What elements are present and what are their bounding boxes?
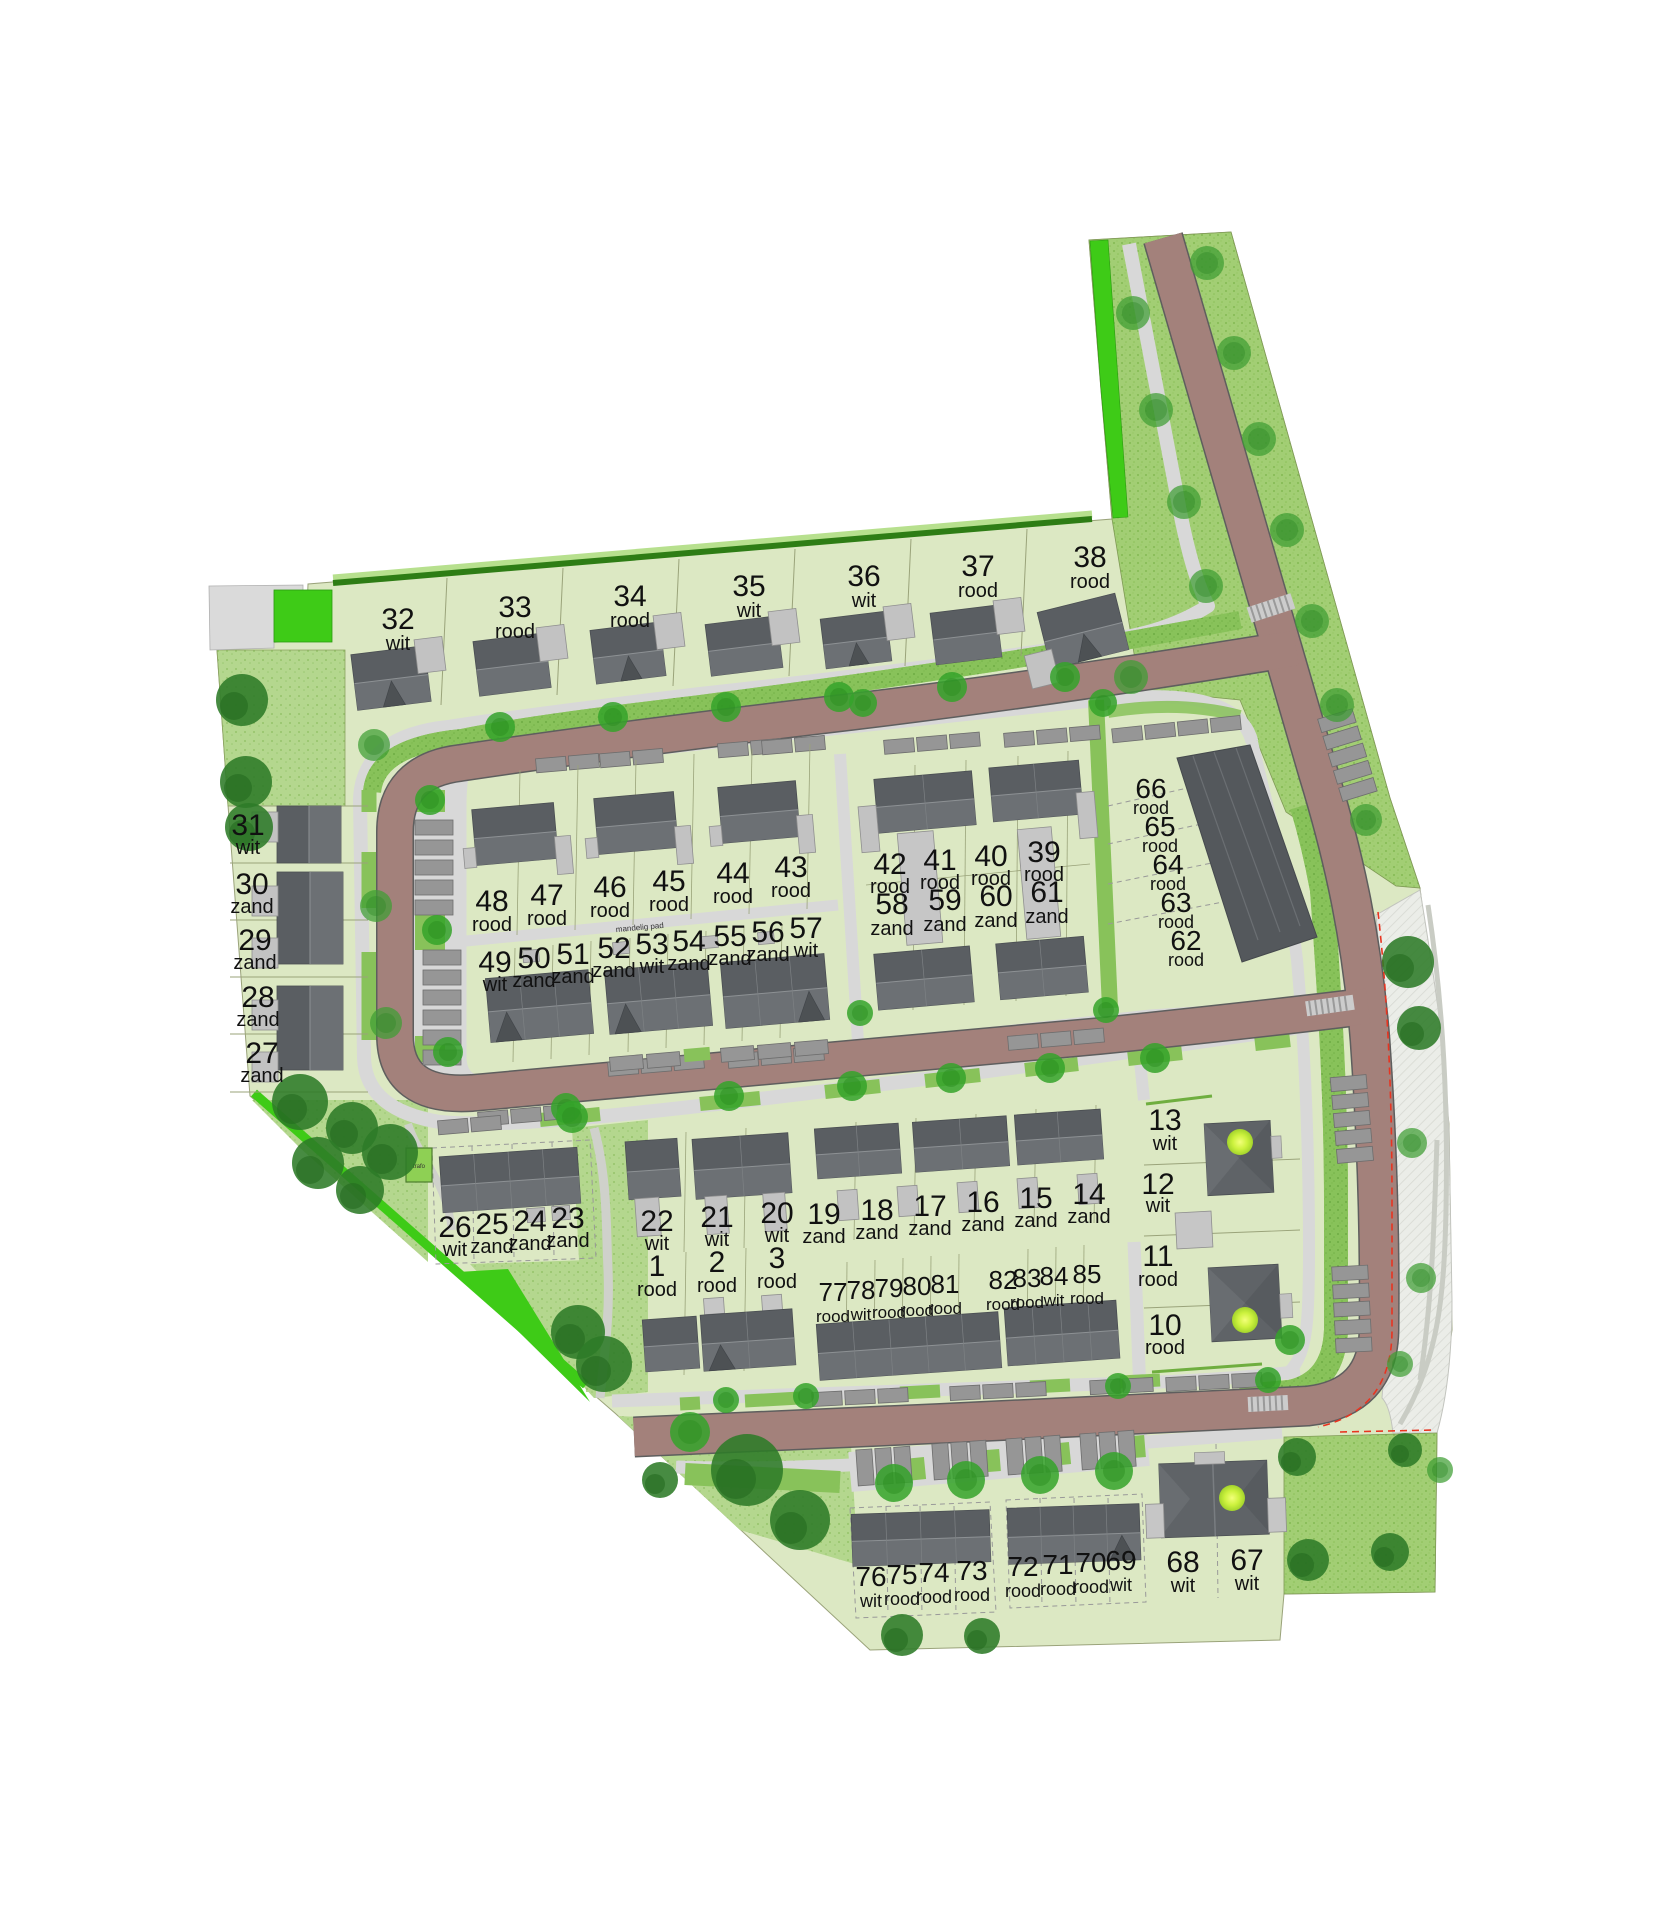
- svg-text:61: 61: [1030, 876, 1063, 909]
- svg-text:rood: rood: [590, 900, 630, 922]
- svg-text:zand: zand: [1014, 1210, 1057, 1232]
- svg-text:zand: zand: [512, 970, 555, 992]
- svg-text:78: 78: [847, 1275, 876, 1305]
- svg-text:rood: rood: [1168, 950, 1204, 970]
- svg-text:rood: rood: [649, 894, 689, 916]
- svg-text:zand: zand: [974, 910, 1017, 932]
- svg-text:rood: rood: [1040, 1579, 1076, 1599]
- svg-text:zand: zand: [233, 952, 276, 974]
- svg-text:trafo: trafo: [413, 1164, 426, 1170]
- svg-text:rood: rood: [757, 1271, 797, 1293]
- svg-text:36: 36: [847, 560, 880, 593]
- svg-text:zand: zand: [1025, 906, 1068, 928]
- svg-text:38: 38: [1073, 541, 1106, 574]
- svg-text:rood: rood: [610, 610, 650, 632]
- svg-text:70: 70: [1075, 1547, 1106, 1578]
- svg-text:zand: zand: [470, 1236, 513, 1258]
- svg-text:rood: rood: [1005, 1581, 1041, 1601]
- svg-text:60: 60: [979, 880, 1012, 913]
- svg-text:rood: rood: [1070, 571, 1110, 593]
- svg-text:35: 35: [732, 570, 765, 603]
- svg-text:zand: zand: [855, 1222, 898, 1244]
- svg-text:rood: rood: [495, 621, 535, 643]
- svg-text:zand: zand: [908, 1218, 951, 1240]
- svg-text:wit: wit: [1152, 1133, 1178, 1155]
- svg-text:zand: zand: [236, 1009, 279, 1031]
- svg-text:wit: wit: [793, 940, 819, 962]
- svg-text:rood: rood: [1070, 1289, 1104, 1308]
- svg-text:wit: wit: [850, 1305, 872, 1324]
- svg-text:73: 73: [956, 1555, 987, 1586]
- svg-text:rood: rood: [954, 1585, 990, 1605]
- svg-text:zand: zand: [708, 948, 751, 970]
- svg-text:37: 37: [961, 550, 994, 583]
- svg-text:79: 79: [875, 1273, 904, 1303]
- svg-text:rood: rood: [1010, 1293, 1044, 1312]
- svg-text:74: 74: [918, 1557, 949, 1588]
- svg-text:34: 34: [613, 580, 646, 613]
- svg-text:33: 33: [498, 591, 531, 624]
- svg-text:58: 58: [875, 888, 908, 921]
- svg-text:81: 81: [931, 1269, 960, 1299]
- svg-text:wit: wit: [1145, 1195, 1171, 1217]
- svg-text:rood: rood: [1145, 1337, 1185, 1359]
- svg-text:rood: rood: [816, 1307, 850, 1326]
- svg-text:zand: zand: [592, 960, 635, 982]
- svg-text:rood: rood: [527, 908, 567, 930]
- svg-text:zand: zand: [923, 914, 966, 936]
- svg-text:zand: zand: [667, 953, 710, 975]
- svg-text:84: 84: [1040, 1261, 1069, 1291]
- svg-text:rood: rood: [771, 880, 811, 902]
- svg-text:wit: wit: [1043, 1291, 1065, 1310]
- svg-text:wit: wit: [385, 633, 411, 655]
- svg-text:wit: wit: [1234, 1573, 1260, 1595]
- svg-text:77: 77: [819, 1277, 848, 1307]
- svg-text:69: 69: [1105, 1545, 1136, 1576]
- svg-text:59: 59: [928, 884, 961, 917]
- svg-text:85: 85: [1073, 1259, 1102, 1289]
- svg-text:wit: wit: [859, 1591, 882, 1611]
- svg-text:rood: rood: [713, 886, 753, 908]
- svg-text:rood: rood: [637, 1279, 677, 1301]
- svg-text:wit: wit: [1170, 1575, 1196, 1597]
- svg-text:rood: rood: [1138, 1269, 1178, 1291]
- svg-text:rood: rood: [697, 1275, 737, 1297]
- svg-text:zand: zand: [240, 1065, 283, 1087]
- svg-text:zand: zand: [546, 1230, 589, 1252]
- svg-text:83: 83: [1013, 1263, 1042, 1293]
- svg-text:rood: rood: [472, 914, 512, 936]
- svg-text:wit: wit: [482, 974, 508, 996]
- svg-text:80: 80: [903, 1271, 932, 1301]
- svg-text:rood: rood: [884, 1589, 920, 1609]
- svg-text:71: 71: [1042, 1549, 1073, 1580]
- svg-text:zand: zand: [802, 1226, 845, 1248]
- svg-text:zand: zand: [230, 896, 273, 918]
- svg-text:wit: wit: [1109, 1575, 1132, 1595]
- svg-text:zand: zand: [1067, 1206, 1110, 1228]
- svg-text:wit: wit: [639, 956, 665, 978]
- svg-text:wit: wit: [851, 590, 877, 612]
- svg-text:72: 72: [1007, 1551, 1038, 1582]
- svg-text:wit: wit: [736, 600, 762, 622]
- svg-text:wit: wit: [442, 1239, 468, 1261]
- svg-text:wit: wit: [235, 837, 261, 859]
- svg-text:zand: zand: [508, 1233, 551, 1255]
- svg-text:rood: rood: [958, 580, 998, 602]
- svg-text:zand: zand: [746, 944, 789, 966]
- svg-text:75: 75: [886, 1559, 917, 1590]
- svg-text:zand: zand: [551, 966, 594, 988]
- svg-text:zand: zand: [870, 918, 913, 940]
- svg-text:rood: rood: [916, 1587, 952, 1607]
- svg-text:rood: rood: [1073, 1577, 1109, 1597]
- svg-text:zand: zand: [961, 1214, 1004, 1236]
- svg-text:76: 76: [855, 1561, 886, 1592]
- svg-text:32: 32: [381, 603, 414, 636]
- svg-text:rood: rood: [928, 1299, 962, 1318]
